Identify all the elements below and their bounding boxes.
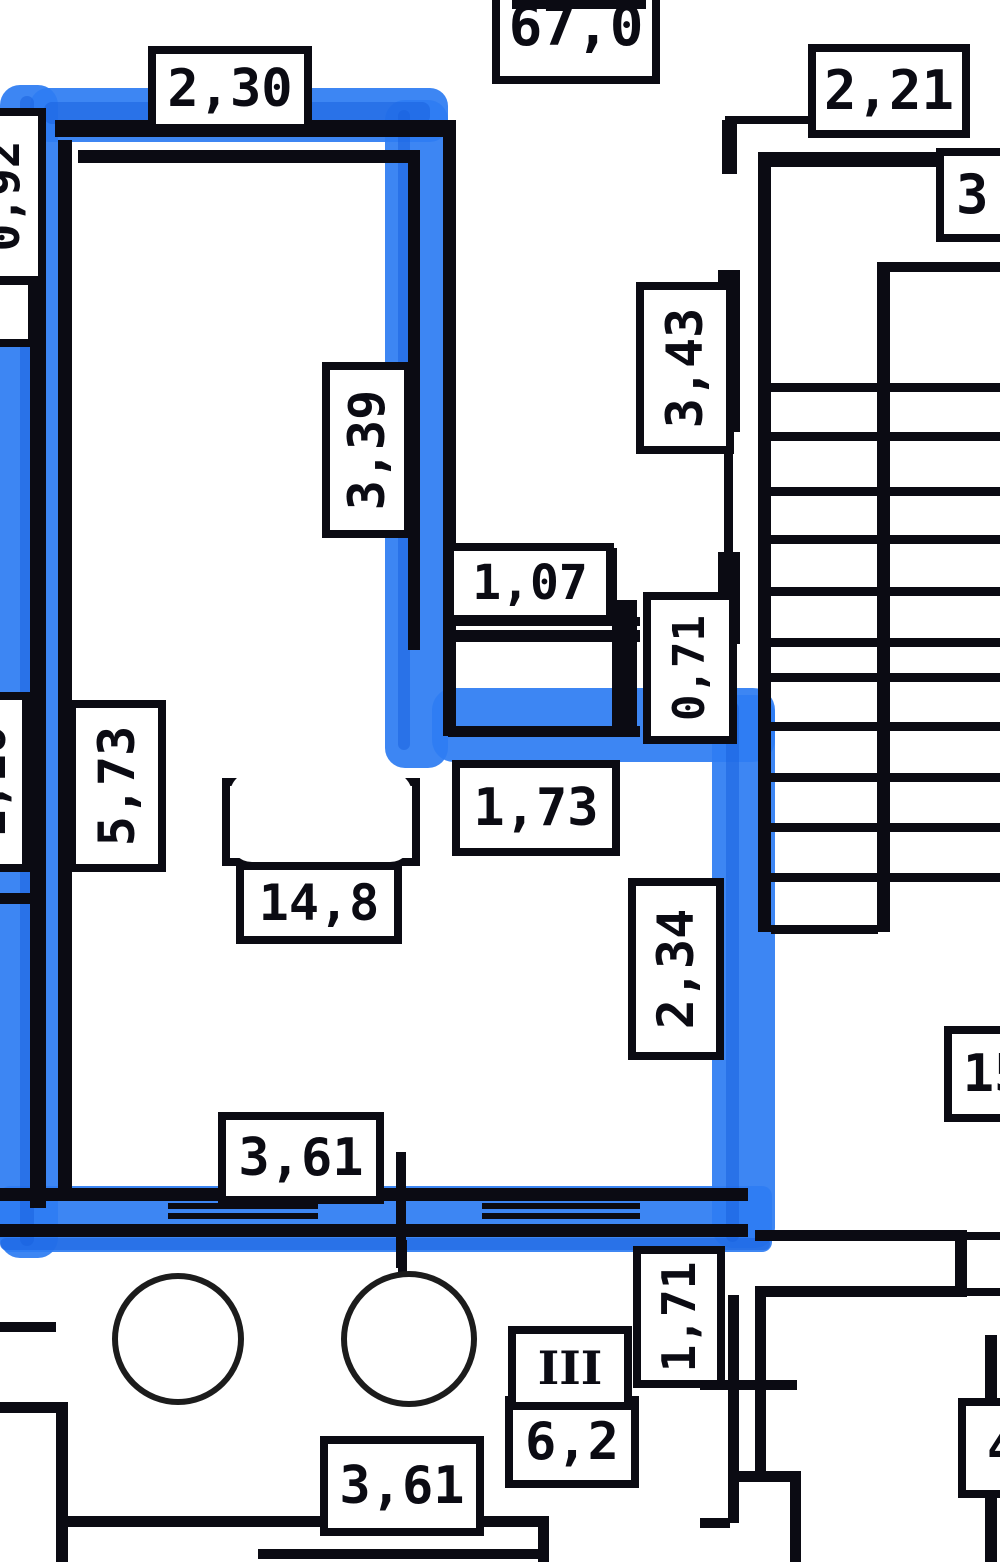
dim-label-text: 5,73: [92, 726, 142, 846]
dim-label-left-edge-mid-partial: 1,16: [0, 692, 30, 872]
dim-label-text: 1,07: [472, 559, 588, 607]
dim-label-landing-partial: 15: [944, 1026, 1000, 1122]
dim-label-text: 0,71: [668, 615, 712, 721]
column-circle: [341, 1271, 477, 1407]
wall-line: [78, 150, 420, 163]
dim-label-niche-width: 1,07: [446, 543, 614, 623]
dim-label-room-height: 5,73: [68, 700, 166, 872]
wall-line: [0, 893, 38, 904]
stair-tread-line: [890, 638, 1000, 647]
wall-line: [725, 116, 815, 124]
wall-line: [755, 1230, 967, 1241]
dim-label-stair-run: 3,43: [636, 282, 734, 454]
wall-line: [612, 600, 637, 737]
wall-line: [955, 1230, 967, 1297]
dim-label-lower-wall-height: 2,34: [628, 878, 724, 1060]
stair-tread-line: [771, 638, 878, 647]
erased-label-whiteout: [230, 772, 412, 862]
wall-line: [0, 1322, 56, 1332]
wall-line: [443, 120, 456, 736]
column-circle: [112, 1273, 244, 1405]
wall-line: [482, 1203, 640, 1209]
total-area-box-inner-line: [512, 0, 646, 9]
stair-tread-line: [890, 587, 1000, 596]
stair-tread-line: [771, 925, 878, 934]
dim-label-text: 3: [956, 168, 989, 222]
wall-line: [168, 1213, 318, 1219]
dim-label-text: 1,16: [0, 727, 12, 838]
stair-tread-line: [771, 673, 878, 682]
wall-line: [728, 1295, 739, 1523]
highlighter-stroke-dark: [726, 702, 739, 1242]
wall-line: [967, 1288, 1000, 1296]
wall-line: [758, 152, 940, 167]
dim-label-bottom-right-partial: 4: [958, 1398, 1000, 1498]
stair-tread-line: [890, 773, 1000, 782]
wall-line: [58, 140, 72, 1197]
wall-line: [985, 1335, 997, 1403]
clipped-empty-label-box: [0, 277, 36, 347]
stair-tread-line: [890, 722, 1000, 731]
wall-line: [790, 1471, 801, 1562]
wall-line: [0, 1224, 748, 1237]
dim-label-mid-wall-width: 1,73: [452, 760, 620, 856]
stair-tread-line: [771, 873, 878, 882]
wall-line: [967, 1232, 1000, 1240]
stair-tread-line: [890, 383, 1000, 392]
dim-label-upper-wall-height: 3,39: [322, 362, 412, 538]
stair-tread-line: [771, 487, 878, 496]
dim-label-niche-depth: 0,71: [643, 592, 737, 744]
dim-label-text: 1,71: [656, 1262, 702, 1373]
wall-line: [755, 1286, 967, 1297]
dim-label-left-edge-top-partial: 0,92: [0, 108, 46, 284]
dim-label-text: III: [538, 1345, 603, 1391]
dim-label-text: 3,43: [660, 308, 710, 428]
stair-tread-line: [890, 535, 1000, 544]
wall-line: [722, 120, 737, 174]
dim-label-text: 6,2: [525, 1416, 619, 1468]
stair-tread-line: [890, 823, 1000, 832]
dim-label-text: 2,21: [824, 64, 954, 118]
wall-line: [258, 1549, 545, 1559]
stair-tread-line: [890, 873, 1000, 882]
dim-label-text: 1,73: [473, 782, 598, 834]
dim-label-text: 15: [963, 1048, 1000, 1100]
wall-line: [758, 152, 771, 932]
stair-tread-line: [771, 432, 878, 441]
wall-line: [877, 262, 1000, 272]
wall-line: [728, 1471, 798, 1482]
dim-label-text: 2,34: [651, 909, 701, 1029]
wall-line: [56, 1402, 68, 1562]
wall-line: [877, 262, 890, 932]
stair-tread-line: [771, 823, 878, 832]
dim-label-stair-width: 2,21: [808, 44, 970, 138]
dim-label-text: 14,8: [259, 878, 379, 928]
dim-label-top-width: 2,30: [148, 46, 312, 132]
stair-tread-line: [771, 773, 878, 782]
stair-tread-line: [771, 722, 878, 731]
dim-label-text: 0,92: [0, 141, 26, 252]
stair-tread-line: [771, 383, 878, 392]
stair-tread-line: [771, 535, 878, 544]
dim-label-balcony-number: III: [508, 1326, 632, 1410]
wall-line: [985, 1498, 997, 1562]
dim-label-text: 2,30: [167, 63, 292, 115]
dim-label-balcony-width: 3,61: [320, 1436, 484, 1536]
dim-label-text: 3,61: [238, 1132, 363, 1184]
dim-label-bottom-width: 3,61: [218, 1112, 384, 1204]
wall-line: [700, 1518, 730, 1528]
dim-label-text: 3,39: [342, 390, 392, 510]
stair-tread-line: [890, 487, 1000, 496]
floor-plan: 67,02,302,2130,921,165,733,391,070,713,4…: [0, 0, 1000, 1562]
dim-label-room-area: 14,8: [236, 862, 402, 944]
stair-tread-line: [890, 432, 1000, 441]
stair-tread-line: [771, 587, 878, 596]
dim-label-right-edge-partial: 3: [936, 148, 1000, 242]
dim-label-text: 4: [987, 1423, 1000, 1473]
dim-label-total-area: 67,0: [492, 0, 660, 84]
wall-line: [482, 1213, 640, 1219]
dim-label-balcony-depth: 1,71: [633, 1246, 725, 1388]
stair-tread-line: [890, 673, 1000, 682]
dim-label-text: 3,61: [339, 1460, 464, 1512]
